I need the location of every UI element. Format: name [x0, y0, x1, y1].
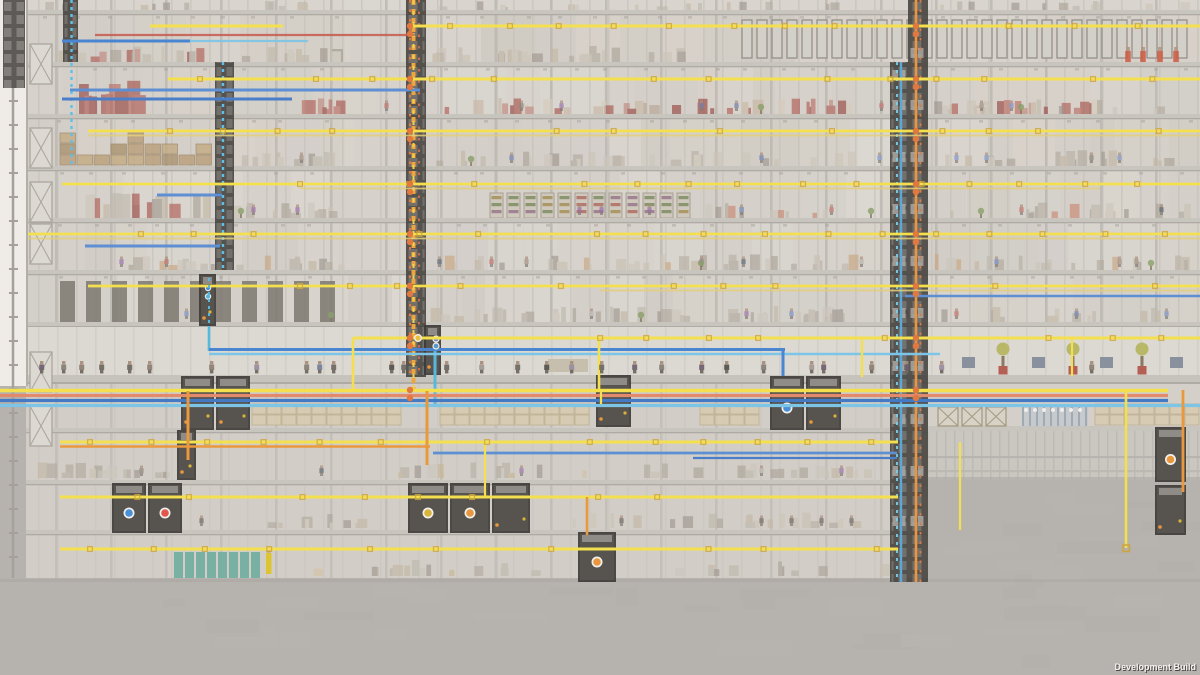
svg-text:Development Build: Development Build: [1114, 662, 1196, 672]
